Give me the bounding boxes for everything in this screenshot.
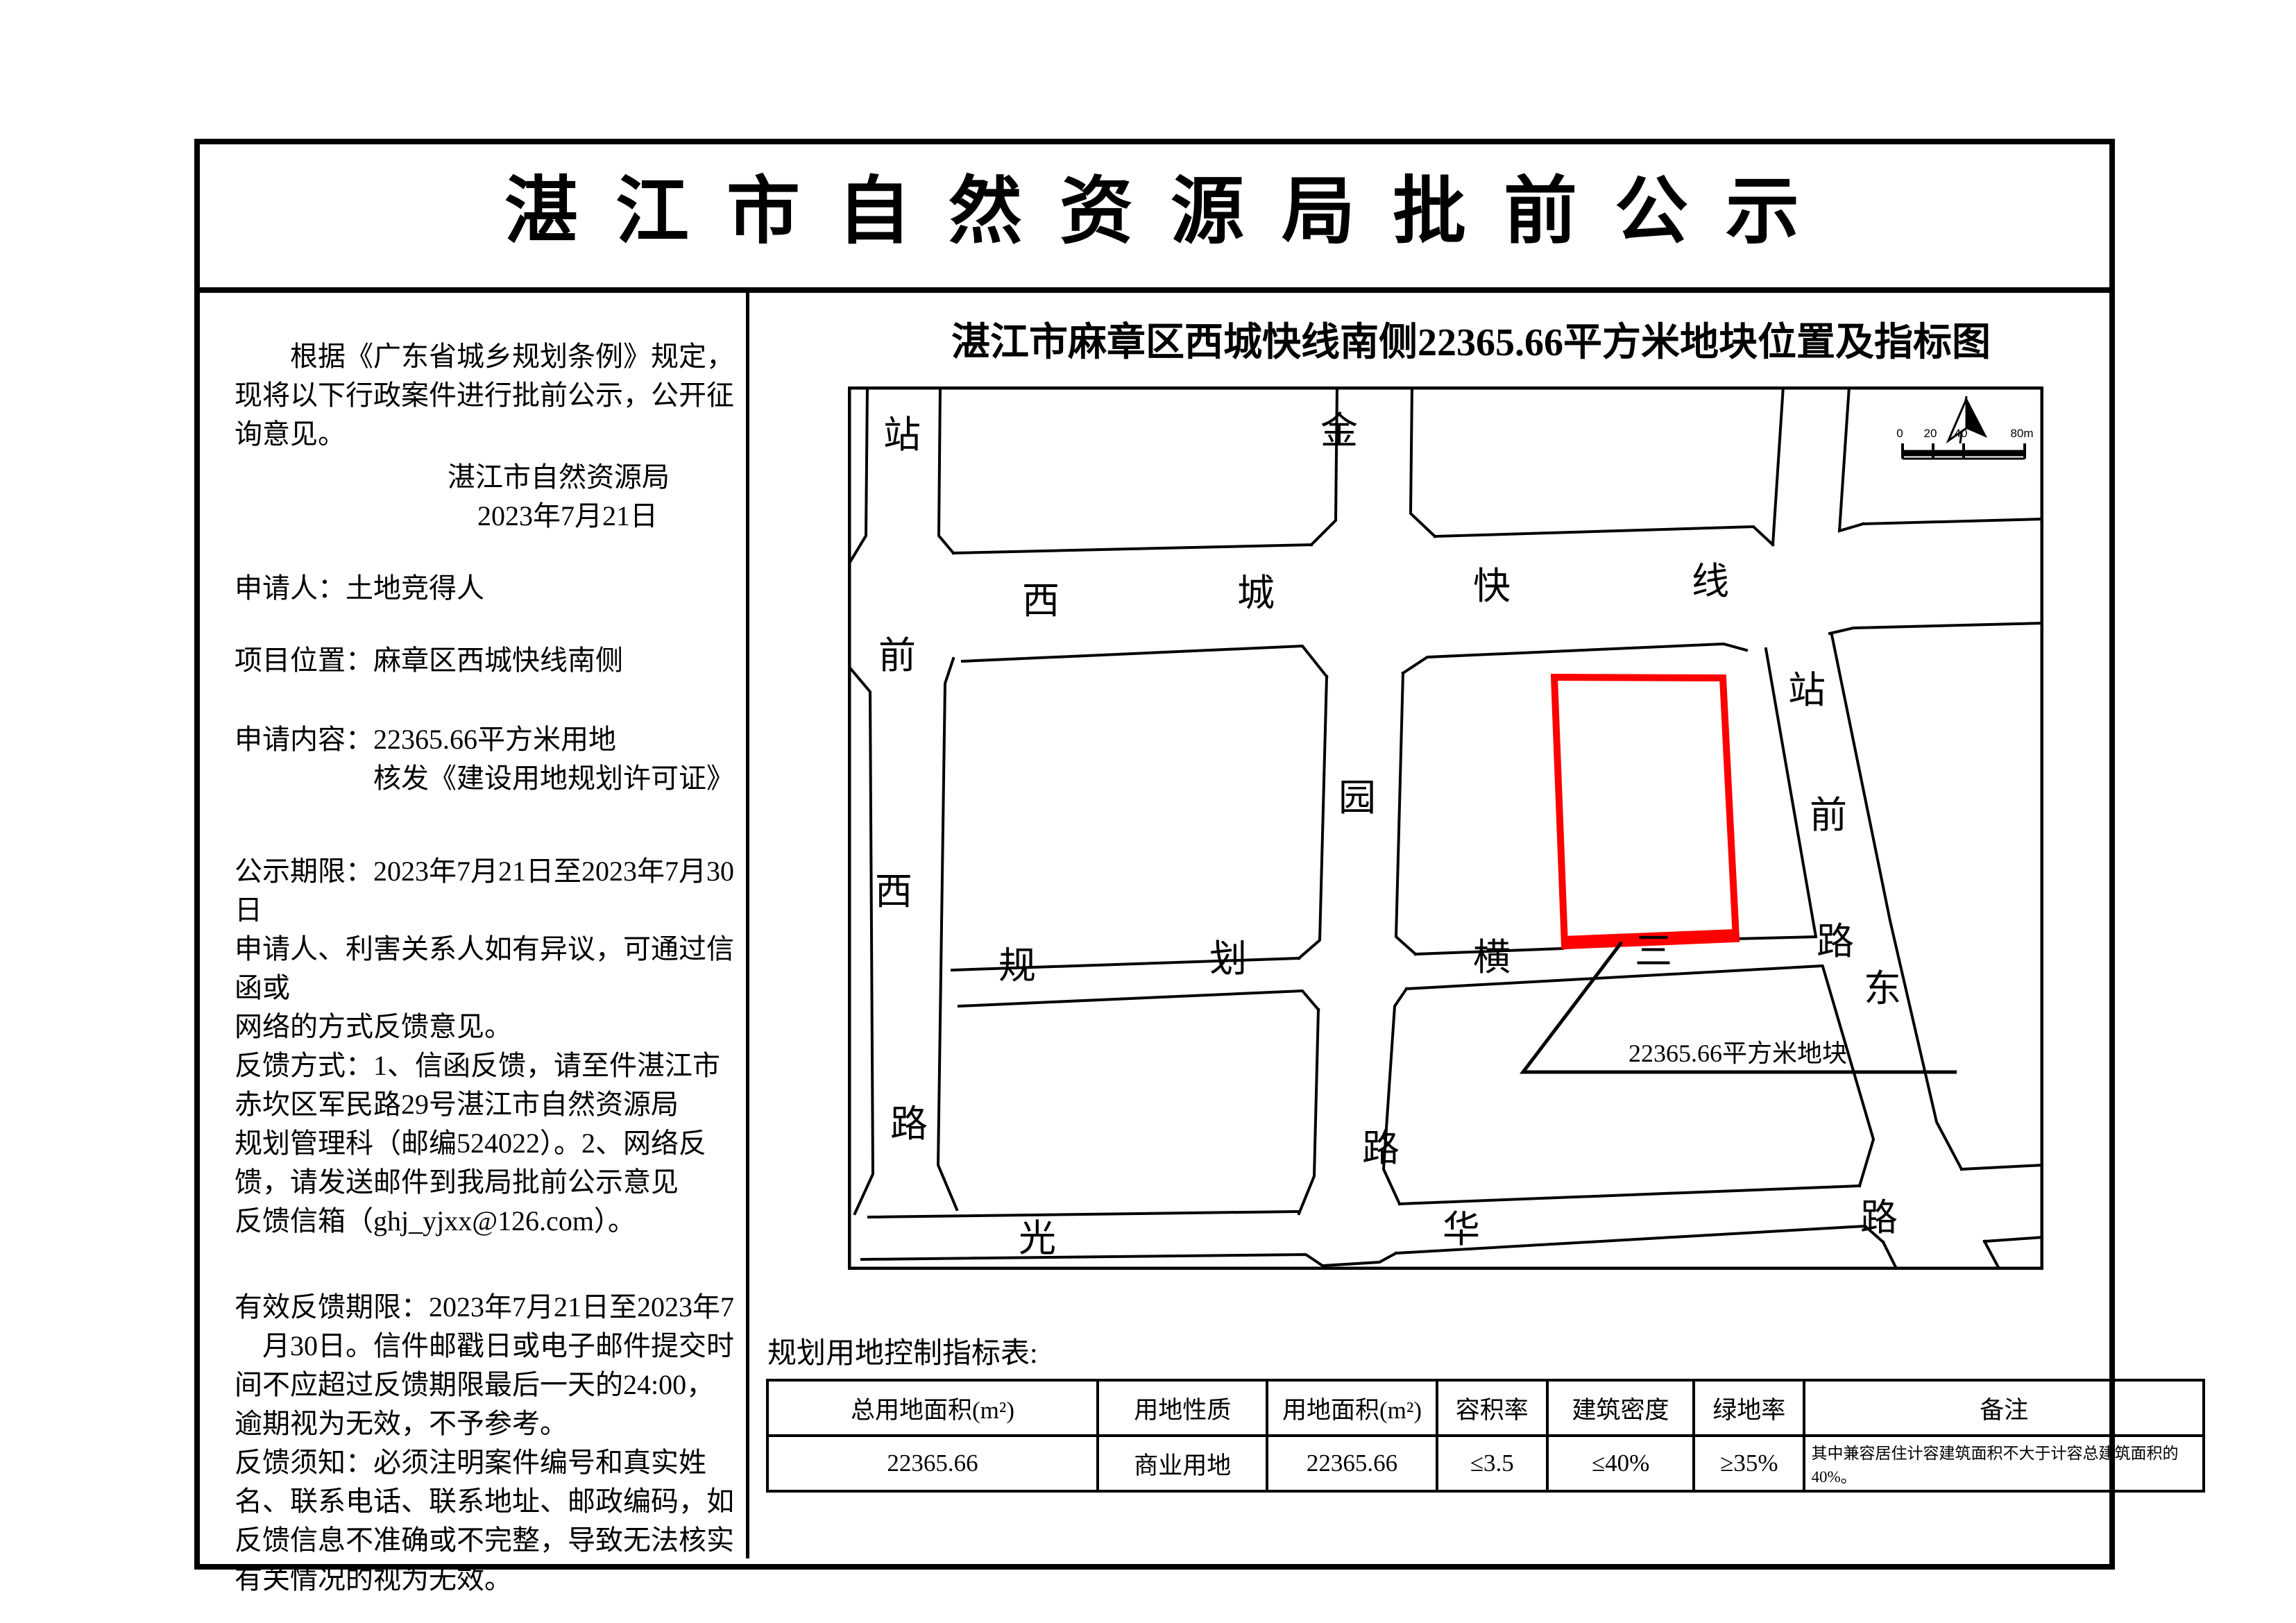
road-label-char-站前西路: 前: [878, 637, 916, 674]
road-label-char-西城快线: 线: [1692, 563, 1729, 600]
header-density: 建筑密度: [1547, 1380, 1694, 1436]
value-land-use: 商业用地: [1098, 1436, 1267, 1491]
scale-bar: [1903, 443, 2025, 459]
map-frame: [849, 388, 2042, 1268]
notice-date: 2023年7月21日: [235, 497, 742, 536]
table-data-row: 22365.66 商业用地 22365.66 ≤3.5 ≤40% ≥35% 其中…: [767, 1436, 2204, 1491]
deadline-block: 有效反馈期限：2023年7月21日至2023年7 月30日。信件邮戳日或电子邮件…: [235, 1288, 742, 1443]
road-label-char-光华路: 路: [1860, 1199, 1898, 1237]
road-label-char-西城快线: 西: [1022, 582, 1060, 620]
road-label-char-西城快线: 城: [1237, 575, 1275, 612]
header-plot-area: 用地面积(m²): [1267, 1380, 1436, 1436]
indicator-table: 总用地面积(m²) 用地性质 用地面积(m²) 容积率 建筑密度 绿地率 备注 …: [766, 1379, 2205, 1493]
road-label-char-规划横三路: 路: [1817, 923, 1854, 960]
value-total-area: 22365.66: [767, 1436, 1098, 1491]
road-network-drawing: [848, 386, 2043, 1270]
scale-label: 0: [1896, 427, 1903, 441]
notes-block: 反馈须知：必须注明案件编号和真实姓 名、联系电话、联系地址、邮政编码，如 反馈信…: [235, 1443, 742, 1599]
header-far: 容积率: [1437, 1380, 1547, 1436]
header-remark: 备注: [1804, 1380, 2204, 1436]
panel-divider: [746, 291, 749, 1558]
road-label-char-金园路: 园: [1338, 779, 1376, 817]
road-label-char-站前西路: 路: [890, 1105, 928, 1143]
red-plot-outline: [1554, 677, 1736, 946]
location-map: 站前西路西城快线金园路规划横三路站前东光华路 22365.66平方米地块 020…: [848, 386, 2043, 1270]
value-density: ≤40%: [1547, 1436, 1694, 1491]
scale-label: 80m: [2010, 427, 2033, 441]
header-green-ratio: 绿地率: [1694, 1380, 1804, 1436]
location-line: 项目位置：麻章区西城快线南侧: [235, 641, 742, 680]
table-caption: 规划用地控制指标表:: [767, 1329, 1038, 1372]
road-label-char-光华路: 光: [1019, 1220, 1056, 1257]
road-label-char-站前西路: 西: [875, 873, 912, 910]
scale-label: 40: [1955, 427, 1968, 441]
road-label-char-西城快线: 快: [1473, 568, 1511, 605]
road-label-char-规划横三路: 规: [998, 947, 1036, 985]
content-block: 申请内容：22365.66平方米用地 核发《建设用地规划许可证》: [235, 720, 742, 798]
header-land-use: 用地性质: [1098, 1380, 1267, 1436]
road-label-char-光华路: 华: [1443, 1211, 1480, 1248]
map-title: 湛江市麻章区西城快线南侧22365.66平方米地块位置及指标图: [857, 311, 2085, 367]
page-title: 湛江市自然资源局批前公示: [194, 151, 2109, 258]
header-total-area: 总用地面积(m²): [767, 1380, 1098, 1436]
value-remark: 其中兼容居住计容建筑面积不大于计容总建筑面积的40%。: [1804, 1436, 2204, 1491]
road-label-char-规划横三路: 三: [1635, 933, 1672, 970]
road-label-char-金园路: 金: [1320, 412, 1358, 450]
road-label-char-规划横三路: 横: [1473, 939, 1511, 976]
road-label-char-站前路东: 站: [1788, 672, 1826, 709]
road-label-char-站前路东: 东: [1864, 970, 1901, 1008]
road-label-char-规划横三路: 划: [1209, 940, 1247, 978]
road-label-char-站前路东: 前: [1810, 797, 1847, 834]
value-far: ≤3.5: [1437, 1436, 1547, 1491]
value-green-ratio: ≥35%: [1694, 1436, 1804, 1491]
scale-label: 20: [1924, 427, 1937, 441]
notice-intro: 根据《广东省城乡规划条例》规定， 现将以下行政案件进行批前公示，公开征 询意见。: [235, 337, 742, 454]
table-header-row: 总用地面积(m²) 用地性质 用地面积(m²) 容积率 建筑密度 绿地率 备注: [767, 1380, 2204, 1436]
road-label-char-金园路: 路: [1362, 1130, 1400, 1167]
plot-area-label: 22365.66平方米地块: [1629, 1033, 1847, 1069]
value-plot-area: 22365.66: [1267, 1436, 1436, 1491]
agency-name: 湛江市自然资源局: [235, 458, 742, 497]
applicant-line: 申请人：土地竞得人: [235, 569, 742, 608]
road-label-char-站前西路: 站: [883, 416, 921, 454]
notice-text-panel: 根据《广东省城乡规划条例》规定， 现将以下行政案件进行批前公示，公开征 询意见。…: [235, 337, 742, 1599]
period-block: 公示期限：2023年7月21日至2023年7月30日 申请人、利害关系人如有异议…: [235, 852, 742, 1241]
title-divider: [194, 287, 2109, 293]
